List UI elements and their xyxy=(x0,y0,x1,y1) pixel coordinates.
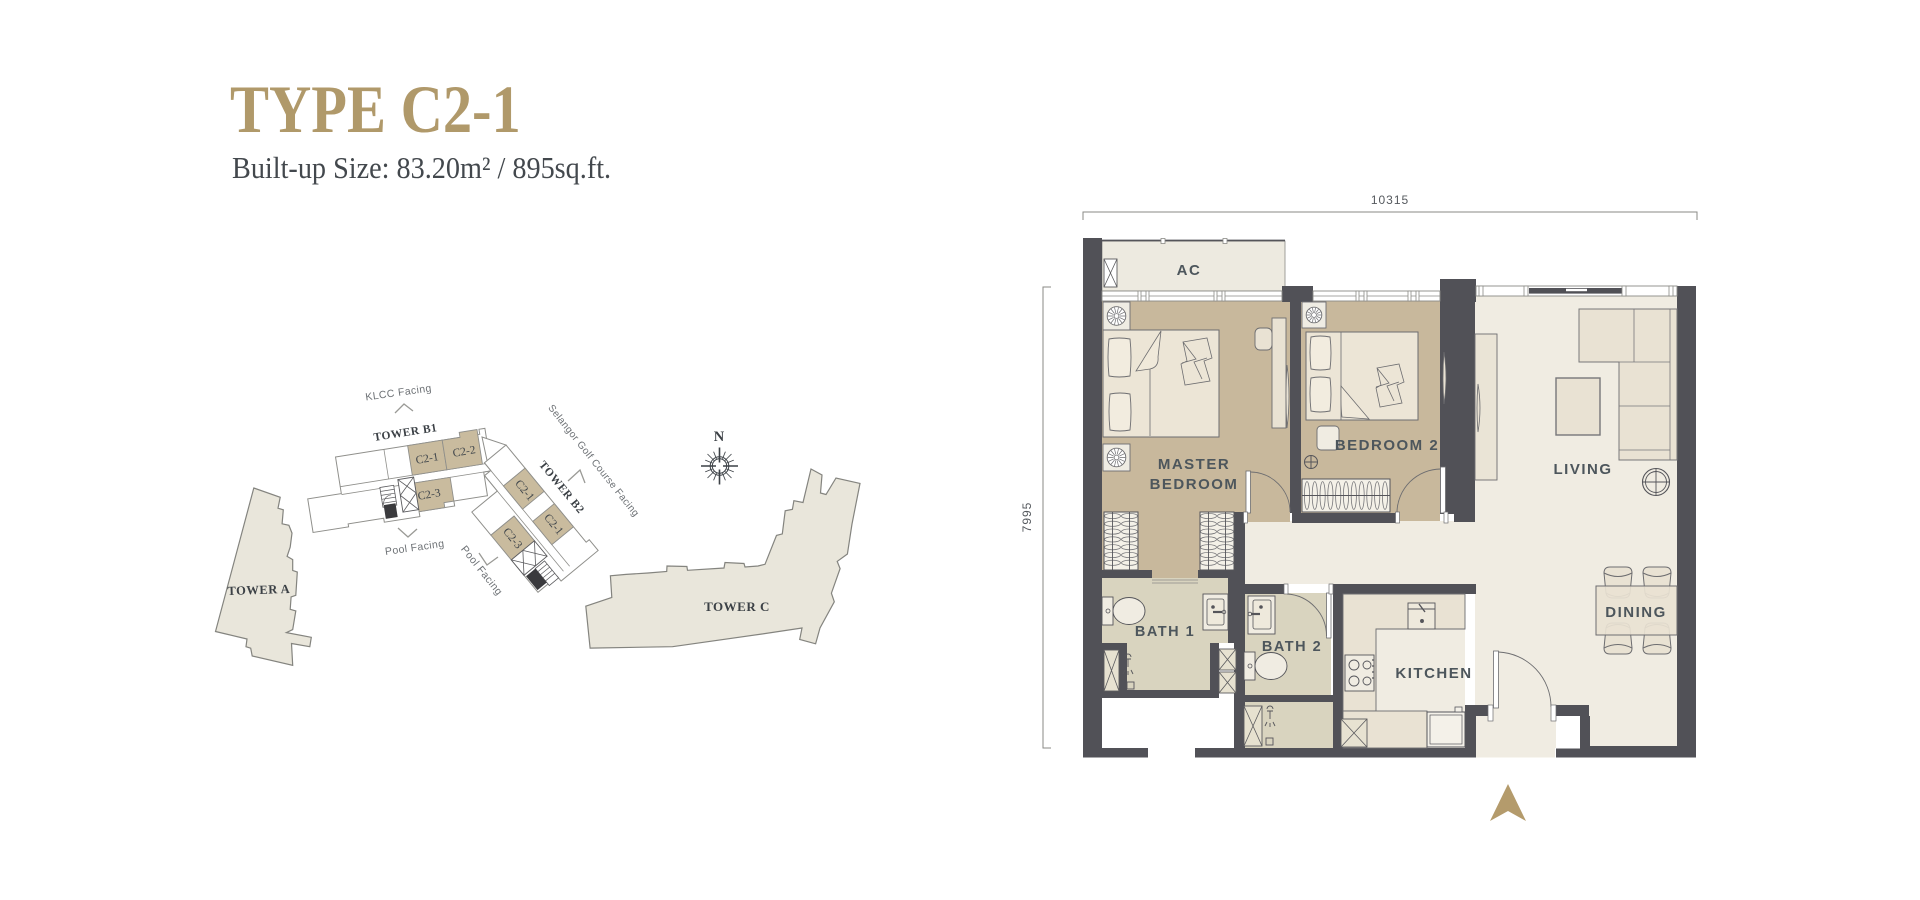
svg-text:10315: 10315 xyxy=(1371,193,1409,207)
svg-text:TOWER B1: TOWER B1 xyxy=(373,422,438,444)
svg-text:TOWER C: TOWER C xyxy=(704,599,770,614)
svg-text:BATH 1: BATH 1 xyxy=(1135,624,1195,640)
svg-text:LIVING: LIVING xyxy=(1553,461,1612,478)
svg-text:TOWER A: TOWER A xyxy=(227,582,290,598)
svg-text:KLCC Facing: KLCC Facing xyxy=(365,382,433,403)
svg-text:BEDROOM: BEDROOM xyxy=(1150,476,1239,493)
svg-text:BEDROOM 2: BEDROOM 2 xyxy=(1335,437,1439,454)
svg-text:AC: AC xyxy=(1177,262,1202,279)
svg-text:Pool Facing: Pool Facing xyxy=(384,538,445,558)
svg-text:N: N xyxy=(714,429,725,445)
svg-text:DINING: DINING xyxy=(1605,604,1667,621)
svg-text:Pool Facing: Pool Facing xyxy=(458,544,505,598)
svg-text:KITCHEN: KITCHEN xyxy=(1395,665,1472,682)
svg-text:MASTER: MASTER xyxy=(1158,456,1230,473)
svg-text:7995: 7995 xyxy=(1020,502,1034,533)
svg-text:Selangor Golf Course Facing: Selangor Golf Course Facing xyxy=(545,403,641,519)
svg-text:BATH 2: BATH 2 xyxy=(1262,639,1322,655)
